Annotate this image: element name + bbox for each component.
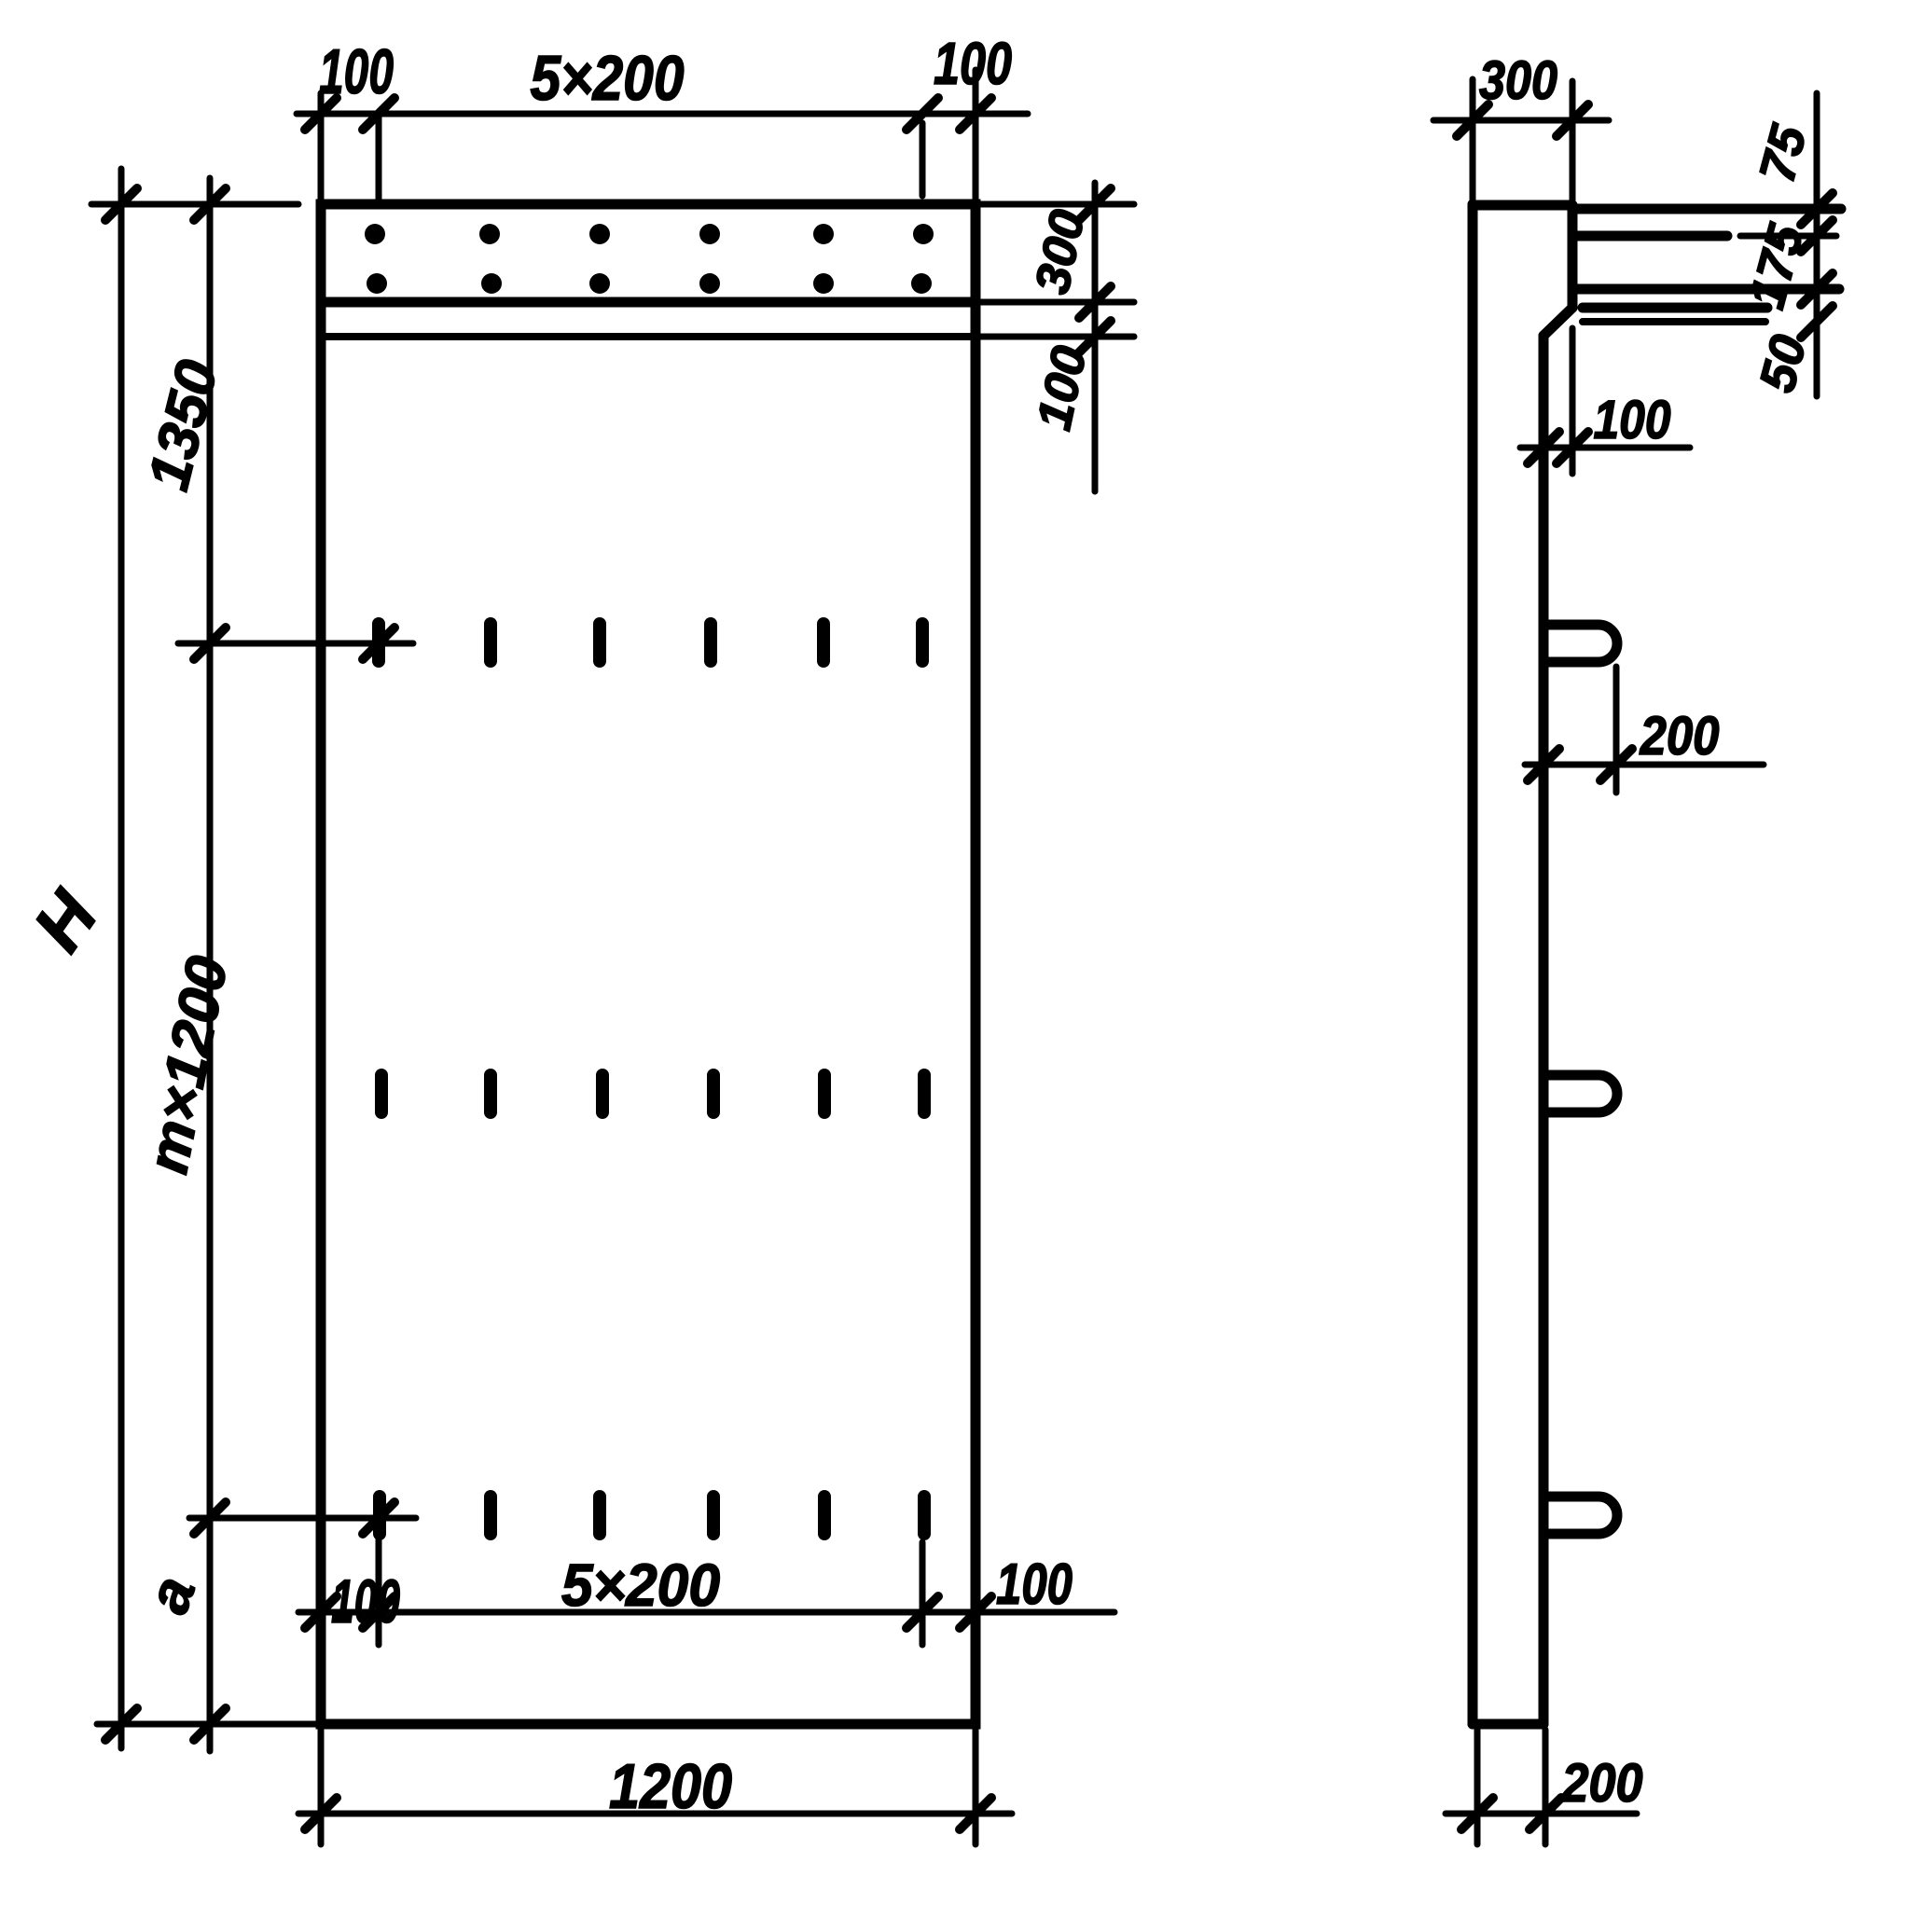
- svg-text:200: 200: [1561, 1753, 1643, 1814]
- svg-text:1200: 1200: [609, 1751, 732, 1822]
- svg-text:5×200: 5×200: [561, 1552, 720, 1619]
- svg-text:100: 100: [331, 1566, 400, 1635]
- svg-text:5×200: 5×200: [531, 43, 685, 114]
- svg-text:100: 100: [934, 30, 1012, 97]
- svg-text:100: 100: [1594, 390, 1671, 450]
- svg-text:100: 100: [319, 36, 394, 107]
- svg-text:100: 100: [996, 1552, 1073, 1617]
- svg-text:200: 200: [1640, 706, 1720, 766]
- svg-text:300: 300: [1479, 50, 1557, 111]
